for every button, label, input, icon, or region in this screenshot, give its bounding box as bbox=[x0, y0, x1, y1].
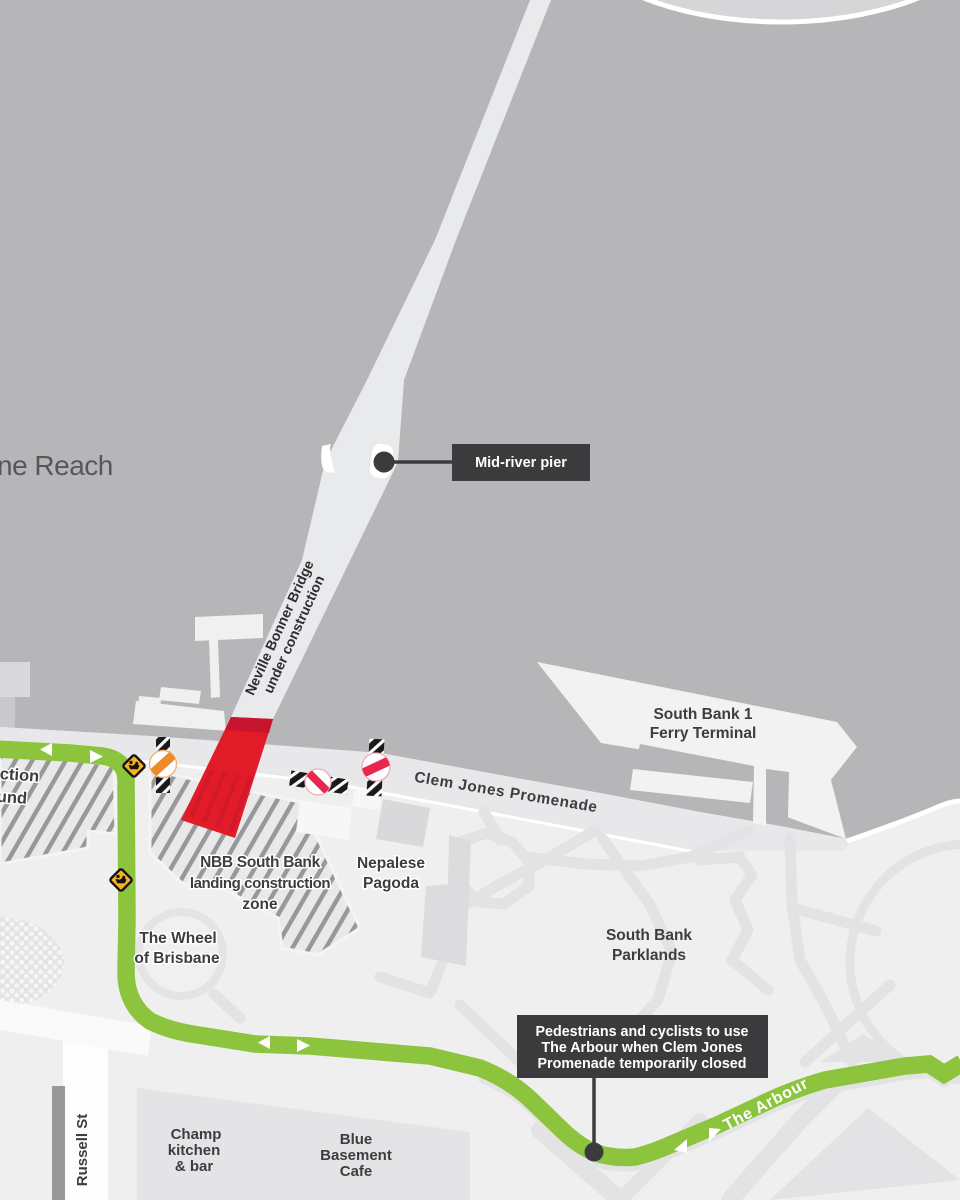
svg-text:landing construction: landing construction bbox=[190, 875, 331, 892]
svg-text:und: und bbox=[0, 788, 28, 808]
svg-text:Parklands: Parklands bbox=[612, 947, 686, 964]
svg-text:Ferry Terminal: Ferry Terminal bbox=[650, 725, 757, 742]
svg-text:zone: zone bbox=[242, 896, 278, 913]
svg-text:Basement: Basement bbox=[320, 1147, 392, 1164]
svg-text:South Bank: South Bank bbox=[606, 927, 692, 944]
svg-text:ction: ction bbox=[0, 765, 40, 786]
svg-text:South Bank 1: South Bank 1 bbox=[653, 706, 752, 723]
svg-text:Pedestrians and cyclists to us: Pedestrians and cyclists to use bbox=[536, 1024, 749, 1040]
svg-text:of Brisbane: of Brisbane bbox=[134, 950, 220, 967]
svg-text:Promenade temporarily closed: Promenade temporarily closed bbox=[538, 1056, 747, 1072]
svg-text:Pagoda: Pagoda bbox=[363, 875, 419, 892]
svg-text:Blue: Blue bbox=[340, 1131, 373, 1148]
svg-text:& bar: & bar bbox=[175, 1158, 214, 1175]
svg-text:Russell St: Russell St bbox=[74, 1114, 91, 1187]
svg-text:The Arbour when Clem Jones: The Arbour when Clem Jones bbox=[541, 1040, 742, 1056]
svg-text:Mid-river pier: Mid-river pier bbox=[475, 455, 567, 471]
svg-text:NBB South Bank: NBB South Bank bbox=[200, 854, 320, 871]
svg-text:Nepalese: Nepalese bbox=[357, 855, 425, 872]
svg-text:Champ: Champ bbox=[171, 1126, 222, 1143]
svg-text:The Wheel: The Wheel bbox=[139, 930, 217, 947]
svg-text:ne Reach: ne Reach bbox=[0, 450, 113, 481]
svg-text:kitchen: kitchen bbox=[168, 1142, 221, 1159]
svg-text:Cafe: Cafe bbox=[340, 1163, 373, 1180]
